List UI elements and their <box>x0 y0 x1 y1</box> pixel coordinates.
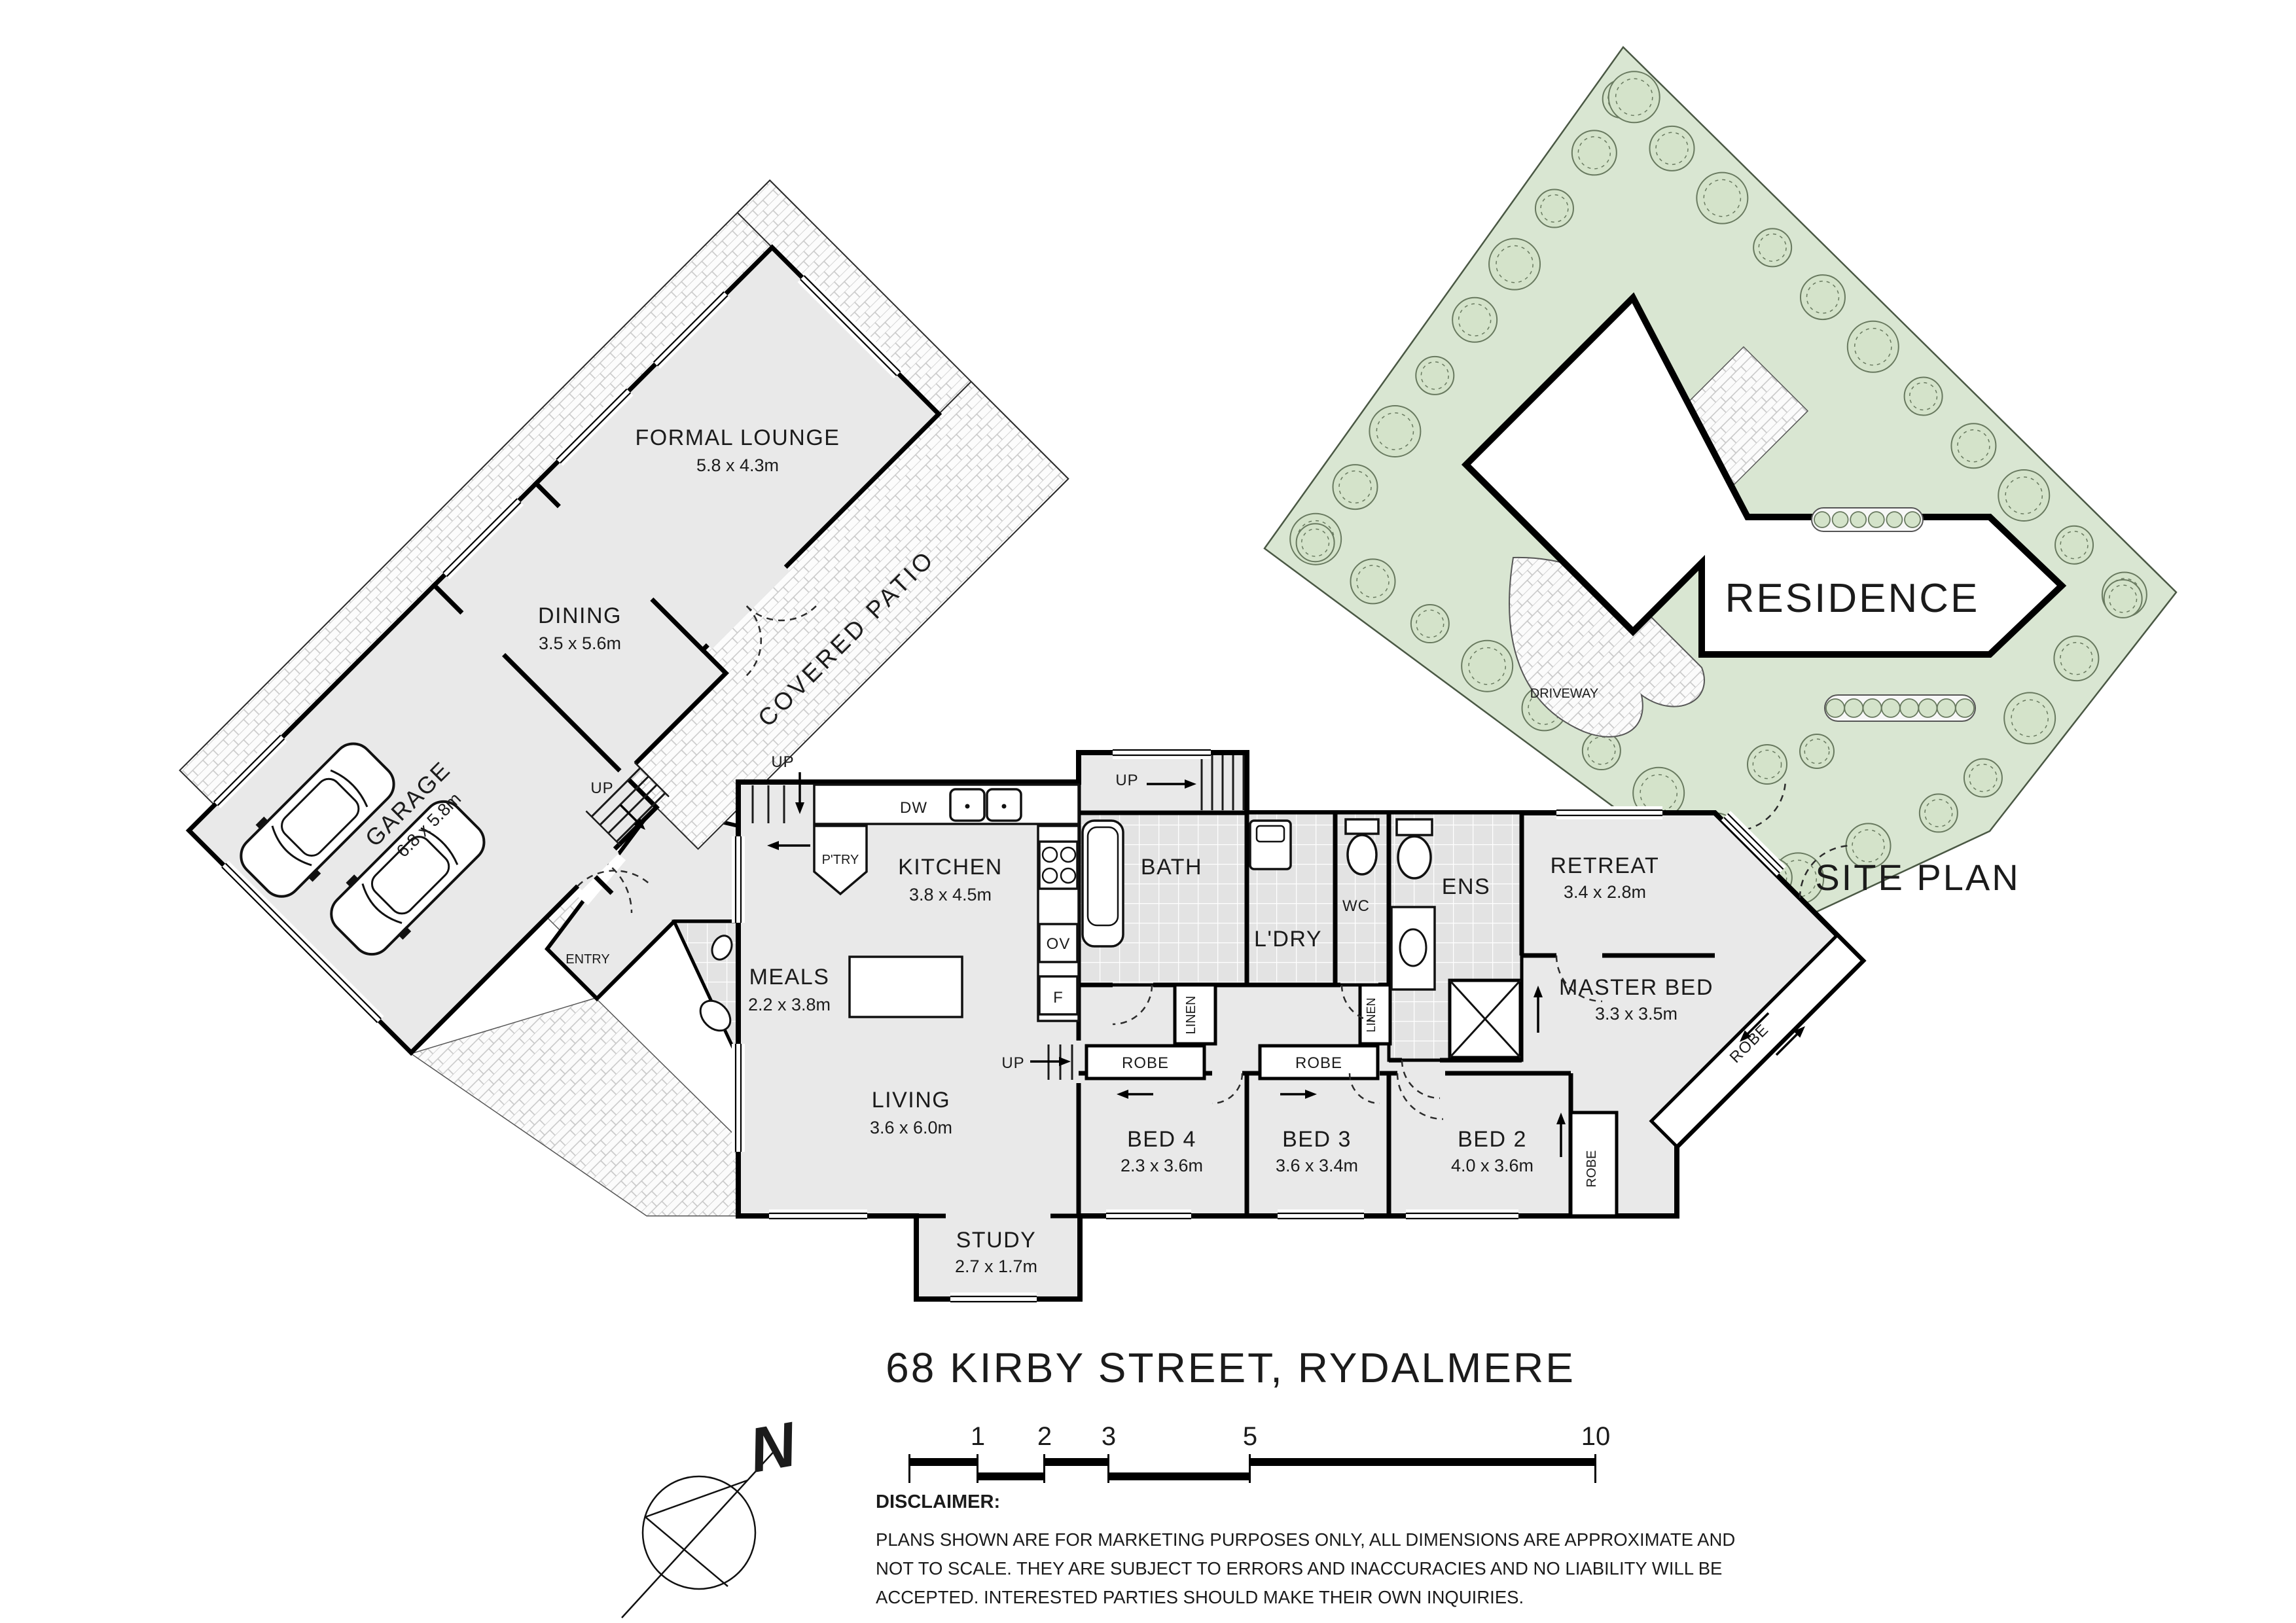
master-bed-dims: 3.3 x 3.5m <box>1595 1004 1677 1024</box>
bath-label: BATH <box>1141 855 1202 880</box>
tree-icon <box>1297 524 1335 562</box>
residence-label: RESIDENCE <box>1725 576 1980 621</box>
bed3-dims: 3.6 x 3.4m <box>1276 1156 1358 1175</box>
ens-toilet <box>1398 836 1431 878</box>
window <box>769 1209 867 1222</box>
meals-label: MEALS <box>749 965 830 990</box>
up-label-landing: UP <box>1115 772 1138 789</box>
fridge-label: F <box>1053 989 1064 1007</box>
study-dims: 2.7 x 1.7m <box>955 1257 1037 1276</box>
scale-tick-1: 1 <box>971 1422 985 1451</box>
disclaimer-line-1: PLANS SHOWN ARE FOR MARKETING PURPOSES O… <box>876 1529 1735 1550</box>
window <box>950 1293 1037 1306</box>
island-bench <box>850 957 962 1017</box>
meals-dims: 2.2 x 3.8m <box>748 995 831 1014</box>
tree-icon <box>1583 732 1621 770</box>
oven-label: OV <box>1047 935 1071 953</box>
tree-icon <box>1964 759 2002 797</box>
tree-icon <box>1848 321 1899 372</box>
living-dims: 3.6 x 6.0m <box>870 1118 952 1137</box>
linen-1-label: LINEN <box>1184 996 1198 1035</box>
robe-label-bed4: ROBE <box>1122 1054 1169 1072</box>
window <box>1406 1209 1518 1222</box>
laundry-label: L'DRY <box>1254 927 1322 952</box>
up-label-hall: UP <box>1001 1054 1024 1072</box>
page-title: 68 KIRBY STREET, RYDALMERE <box>886 1344 1575 1391</box>
tree-icon <box>1800 734 1834 768</box>
scale-tick-3: 3 <box>1102 1422 1116 1451</box>
kitchen-dims: 3.8 x 4.5m <box>909 885 992 904</box>
tree-icon <box>2004 692 2055 743</box>
robe-label-bed3: ROBE <box>1295 1054 1342 1072</box>
window <box>1113 746 1211 759</box>
tree-icon <box>1351 559 1395 603</box>
window <box>1556 806 1662 819</box>
window <box>1106 1209 1191 1222</box>
tree-icon <box>1748 745 1787 784</box>
site-plan-caption: SITE PLAN <box>1815 857 2020 898</box>
linen-2-label: LINEN <box>1365 997 1378 1032</box>
tree-icon <box>1535 190 1573 228</box>
dishwasher-label: DW <box>900 799 927 817</box>
tree-icon <box>1369 406 1420 457</box>
tree-icon <box>2054 636 2098 681</box>
tree-icon <box>2104 580 2142 618</box>
tree-icon <box>1951 423 1996 468</box>
window <box>1278 1209 1364 1222</box>
entry-label: ENTRY <box>565 952 609 967</box>
floor-plan-page: RESIDENCE DRIVEWAY SITE PLAN ENTRY <box>0 0 2296 1623</box>
tree-icon <box>1411 605 1449 643</box>
tree-icon <box>2055 526 2093 564</box>
tree-icon <box>1753 228 1791 266</box>
tree-icon <box>1572 130 1617 175</box>
tree-icon <box>1333 465 1378 509</box>
ens-cistern <box>1397 819 1432 835</box>
retreat-label: RETREAT <box>1551 853 1660 878</box>
wc-toilet <box>1348 835 1376 874</box>
bathtub <box>1083 821 1123 946</box>
hedge-row <box>1825 695 1975 721</box>
pantry-label: P'TRY <box>822 853 859 867</box>
tree-icon <box>1609 71 1660 122</box>
robe-label-bed2: ROBE <box>1585 1150 1599 1188</box>
tree-icon <box>1801 275 1845 319</box>
window <box>732 836 745 923</box>
study-label: STUDY <box>956 1228 1037 1253</box>
tree-icon <box>1462 641 1513 692</box>
dining-dims: 3.5 x 5.6m <box>539 633 621 653</box>
bed3-label: BED 3 <box>1282 1127 1352 1152</box>
formal-lounge-label: FORMAL LOUNGE <box>636 425 840 450</box>
scale-tick-5: 5 <box>1243 1422 1257 1451</box>
tree-icon <box>1650 126 1695 171</box>
scale-tick-10: 10 <box>1581 1422 1611 1451</box>
bed4-label: BED 4 <box>1127 1127 1196 1152</box>
kitchen-label: KITCHEN <box>898 855 1003 880</box>
tree-icon <box>1920 794 1958 832</box>
bed4-dims: 2.3 x 3.6m <box>1121 1156 1203 1175</box>
kitchen-bench <box>814 785 1079 824</box>
tree-icon <box>1696 173 1748 224</box>
up-label-dining: UP <box>590 779 613 797</box>
scale-tick-2: 2 <box>1037 1422 1052 1451</box>
window <box>732 1044 745 1152</box>
hedge-row <box>1812 508 1923 531</box>
disclaimer-heading: DISCLAIMER: <box>876 1491 1000 1512</box>
driveway-label: DRIVEWAY <box>1530 687 1598 701</box>
bed2-dims: 4.0 x 3.6m <box>1451 1156 1534 1175</box>
tree-icon <box>1416 357 1454 395</box>
formal-lounge-dims: 5.8 x 4.3m <box>696 455 779 475</box>
living-label: LIVING <box>872 1088 950 1113</box>
bed2-label: BED 2 <box>1458 1127 1527 1152</box>
tree-icon <box>1905 378 1943 416</box>
wc-label: WC <box>1342 897 1370 915</box>
retreat-dims: 3.4 x 2.8m <box>1564 882 1646 902</box>
disclaimer-line-3: ACCEPTED. INTERESTED PARTIES SHOULD MAKE… <box>876 1587 1524 1607</box>
dining-label: DINING <box>538 603 622 628</box>
wc-cistern <box>1346 819 1378 834</box>
tree-icon <box>1998 470 2049 521</box>
master-bed-label: MASTER BED <box>1559 975 1713 1000</box>
ens-label: ENS <box>1442 874 1490 899</box>
disclaimer-line-2: NOT TO SCALE. THEY ARE SUBJECT TO ERRORS… <box>876 1558 1722 1578</box>
tree-icon <box>1489 239 1540 290</box>
up-label-kitchen: UP <box>771 753 794 771</box>
tree-icon <box>1452 298 1497 342</box>
